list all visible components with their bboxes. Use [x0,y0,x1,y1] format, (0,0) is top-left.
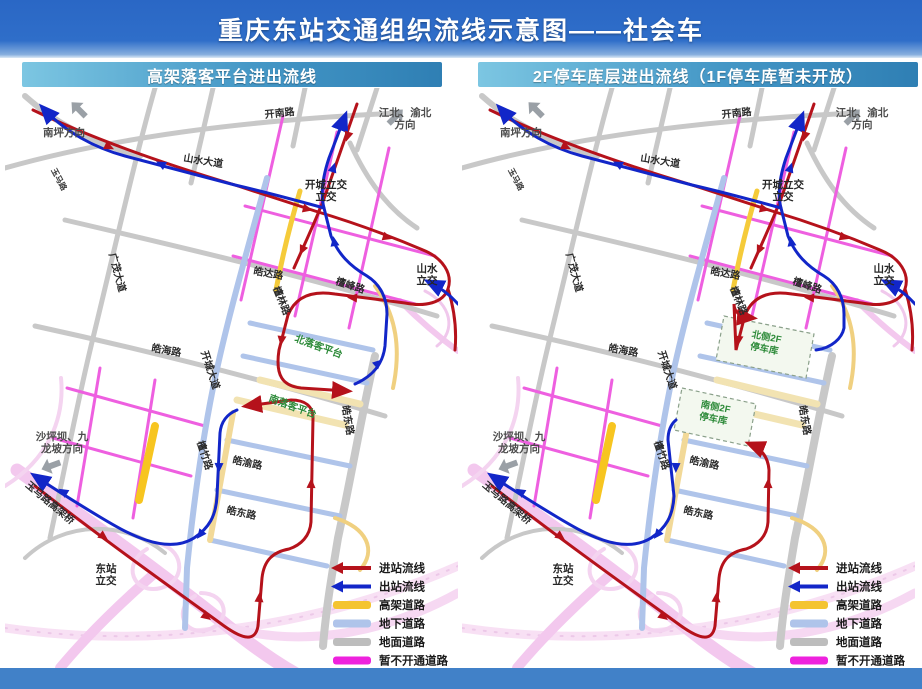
left-map: 南坪方向玉马路山水大道开南路江北、渝北方向开城立交立交广茂大道皓达路檀林路檀峰路… [5,88,458,668]
flow-arrowhead [307,478,316,488]
legend-label: 暂不开通道路 [379,654,448,668]
map-label: 皓渝路 [231,453,264,472]
page-title: 重庆东站交通组织流线示意图——社会车 [218,11,704,47]
title-banner: 重庆东站交通组织流线示意图——社会车 [0,0,922,58]
legend-swatch [333,601,371,609]
map-road [357,88,377,150]
map-label: 檀林路 [270,284,294,318]
map-label: 檀林路 [727,284,751,318]
legend-label: 进站流线 [836,561,882,575]
map-label: 开城立交立交 [305,178,347,203]
map-road [233,256,415,304]
map-road [648,88,670,183]
flow-arrowhead [712,592,722,603]
direction-arrow-icon [39,455,63,477]
map-label: 东站立交 [96,562,117,587]
map-road [67,388,205,426]
legend-label: 高架道路 [379,598,425,612]
map-label: 江北、渝北方向 [379,106,432,131]
map-label: 山水立交 [874,262,895,287]
flow-arrowhead [764,478,773,488]
legend-label: 地下道路 [379,617,425,631]
legend-swatch [333,638,371,646]
legend-label: 地面道路 [379,635,425,649]
map-road [350,143,417,228]
legend-label: 地下道路 [836,617,882,631]
map-label: 江北、渝北方向 [836,106,889,131]
map-road [191,88,213,183]
map-label: 山水大道 [183,151,225,170]
map-road [524,388,662,426]
legend-swatch [790,620,828,628]
flow-arrowhead [255,592,265,603]
map-road [245,206,435,256]
map-label: 山水大道 [640,151,682,170]
map-label: 皓海路 [150,341,183,359]
left-map-svg: 南坪方向玉马路山水大道开南路江北、渝北方向开城立交立交广茂大道皓达路檀林路檀峰路… [5,88,458,668]
legend-swatch [790,657,828,665]
map-label: 沙坪坝、九龙坡方向 [36,430,89,455]
map-label: 皓渝路 [688,453,721,472]
right-panel-header: 2F停车库层进出流线（1F停车库暂未开放） [478,62,918,87]
map-label: 东站立交 [553,562,574,587]
map-label: 沙坪坝、九龙坡方向 [493,430,546,455]
flow-arrowhead [753,244,765,257]
map-label: 皓东路 [682,503,715,522]
map-label: 玉马路 [49,166,70,193]
map-road [492,444,769,637]
left-panel-title: 高架落客平台进出流线 [147,63,317,87]
legend-label: 进站流线 [379,561,425,575]
map-label: 玉马路 [506,166,527,193]
left-panel-header: 高架落客平台进出流线 [22,62,442,87]
legend-swatch [333,620,371,628]
map-road [702,206,892,256]
legend-swatch [790,601,828,609]
map-label: 开城立交立交 [762,178,804,203]
direction-arrow-icon [66,97,91,122]
legend-swatch [790,638,828,646]
map-road [807,143,874,228]
bottom-bar [0,668,922,689]
legend-label: 出站流线 [379,580,425,594]
map-road [690,256,872,304]
map-label: 皓海路 [607,341,640,359]
flow-arrowhead [296,244,308,257]
map-label: 山水立交 [417,262,438,287]
map-label: 皓东路 [225,503,258,522]
map-label: 南坪方向 [43,126,85,139]
map-label: 南坪方向 [500,126,542,139]
legend-label: 暂不开通道路 [836,654,905,668]
right-panel-title: 2F停车库层进出流线（1F停车库暂未开放） [533,63,863,87]
direction-arrow-icon [496,455,520,477]
direction-arrow-icon [523,97,548,122]
legend-label: 高架道路 [836,598,882,612]
legend-label: 地面道路 [836,635,882,649]
right-map: 南坪方向玉马路山水大道开南路江北、渝北方向开城立交立交广茂大道皓达路檀林路檀峰路… [462,88,915,668]
flow-arrowhead [276,335,286,346]
legend-swatch [333,657,371,665]
legend-label: 出站流线 [836,580,882,594]
right-map-svg: 南坪方向玉马路山水大道开南路江北、渝北方向开城立交立交广茂大道皓达路檀林路檀峰路… [462,88,915,668]
map-road [814,88,834,150]
